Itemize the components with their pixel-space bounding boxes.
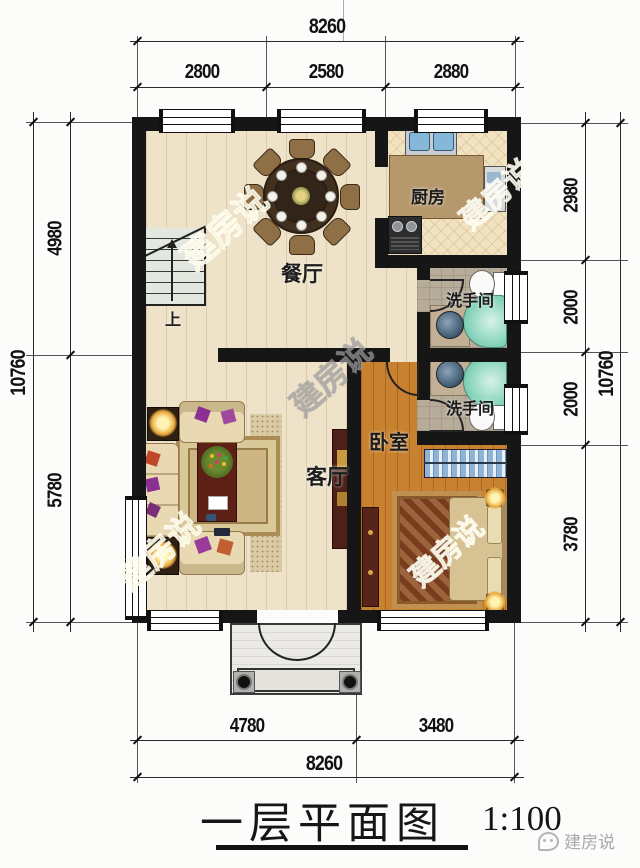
sofa-bottom [179,531,245,575]
plate [276,211,287,222]
stove-grill [391,237,419,250]
window-bottom-bedroom [377,610,489,631]
sink-basin [409,132,430,151]
tv-cabinet-item [337,492,347,506]
dim-bottom-total: 8260 [290,752,358,776]
burner [406,221,417,232]
dimension-line [130,740,524,741]
window-top-1 [159,109,235,133]
sink-basin [433,132,454,151]
room-label-bathroom-upper: 洗手间 [428,287,512,311]
column [342,674,358,690]
cabinet-knob [368,530,373,535]
bed-pillow [487,506,502,544]
room-label-dining: 餐厅 [262,258,342,288]
dim-left-total: 10760 [7,343,31,403]
nightstand-lamp-glow [484,487,506,509]
dim-top-total: 8260 [293,15,361,39]
plate [276,170,287,181]
dimension-line [620,112,621,632]
window-top-3 [414,109,488,133]
plate [296,162,307,173]
dim-right-seg4: 3780 [561,509,584,560]
dining-chair [340,184,360,210]
wardrobe-rail [424,462,507,464]
column [236,674,252,690]
extension-line [521,260,628,261]
dim-bottom-seg2: 3480 [402,715,470,738]
dim-right-seg3: 2000 [561,374,584,425]
bathroom-lower-door-leaf [430,430,464,432]
washbasin-upper [436,311,464,339]
wall-bath-upper-west-b [417,312,430,348]
bedroom-cabinet [362,507,379,607]
plate [267,191,278,202]
logo-face-icon [538,832,559,851]
stairs-arrow [171,247,173,301]
plate [296,220,307,231]
window-left-living [125,496,147,620]
dim-left-seg1: 4980 [45,213,68,264]
magazine [214,528,230,536]
drawing-title: 一层平面图 [200,789,445,851]
dim-top-seg2: 2580 [292,61,360,84]
lamp-glow [149,409,177,437]
fridge-panel [487,172,501,184]
extension-line [521,123,628,124]
title-underline [216,845,468,850]
tray [208,496,228,510]
extension-line [137,36,138,117]
dimension-line [130,777,524,778]
extension-line [26,355,132,356]
washbasin-lower [436,360,464,388]
dimension-line [130,41,524,42]
dim-right-seg2: 2000 [561,282,584,333]
window-top-2 [277,109,366,133]
extension-line [514,623,515,783]
dim-bottom-seg1: 4780 [213,715,281,738]
lamp-glow [149,541,177,569]
plate [325,191,336,202]
extension-line [515,36,516,117]
plate [316,170,327,181]
dim-right-total: 10760 [595,344,619,404]
extension-line [385,36,386,117]
room-label-living: 客厅 [287,461,367,491]
dining-chair [244,184,264,210]
remote [206,514,216,521]
logo-text: 建房说 [564,833,615,853]
wall-right [507,117,521,623]
extension-line [266,36,267,117]
wall-kitchen-west-upper [375,117,388,167]
stairs-up-label: 上 [162,306,184,330]
dim-top-seg3: 2880 [417,61,485,84]
dimension-line [33,112,34,632]
dim-top-seg1: 2800 [168,61,236,84]
dimension-line [585,112,586,632]
flower-dots [215,460,219,464]
window-bottom-living [147,610,223,631]
dim-left-seg2: 5780 [45,465,68,516]
room-label-bedroom: 卧室 [349,426,429,455]
room-label-bathroom-lower: 洗手间 [428,395,512,419]
bed-pillow [487,557,502,595]
extension-line [26,622,132,623]
stairs-arrow-head [167,239,177,248]
table-centerpiece [292,187,310,205]
extension-line [521,622,628,623]
extension-line [26,122,132,123]
plate [316,211,327,222]
floor-plan-canvas: 8260 2800 2580 2880 4980 5780 10760 2980… [0,0,640,868]
wall-divider [218,348,390,362]
wall-between-baths [417,348,521,362]
wall-bath-upper-west-a [417,268,430,280]
dining-chair [289,139,315,159]
dining-chair [289,235,315,255]
sofa-top [179,401,245,443]
room-label-kitchen: 厨房 [398,183,458,208]
pillow [145,477,160,492]
dimension-line [130,87,524,88]
wall-kitchen-south [375,255,521,268]
extension-line [137,623,138,783]
logo: 建房说 [538,828,615,853]
extension-line [521,445,628,446]
burner [392,221,403,232]
bedroom-door-leaf [417,362,419,398]
bathroom-upper-door-leaf [430,279,464,281]
dim-right-seg1: 2980 [561,170,584,221]
dimension-line [70,112,71,632]
